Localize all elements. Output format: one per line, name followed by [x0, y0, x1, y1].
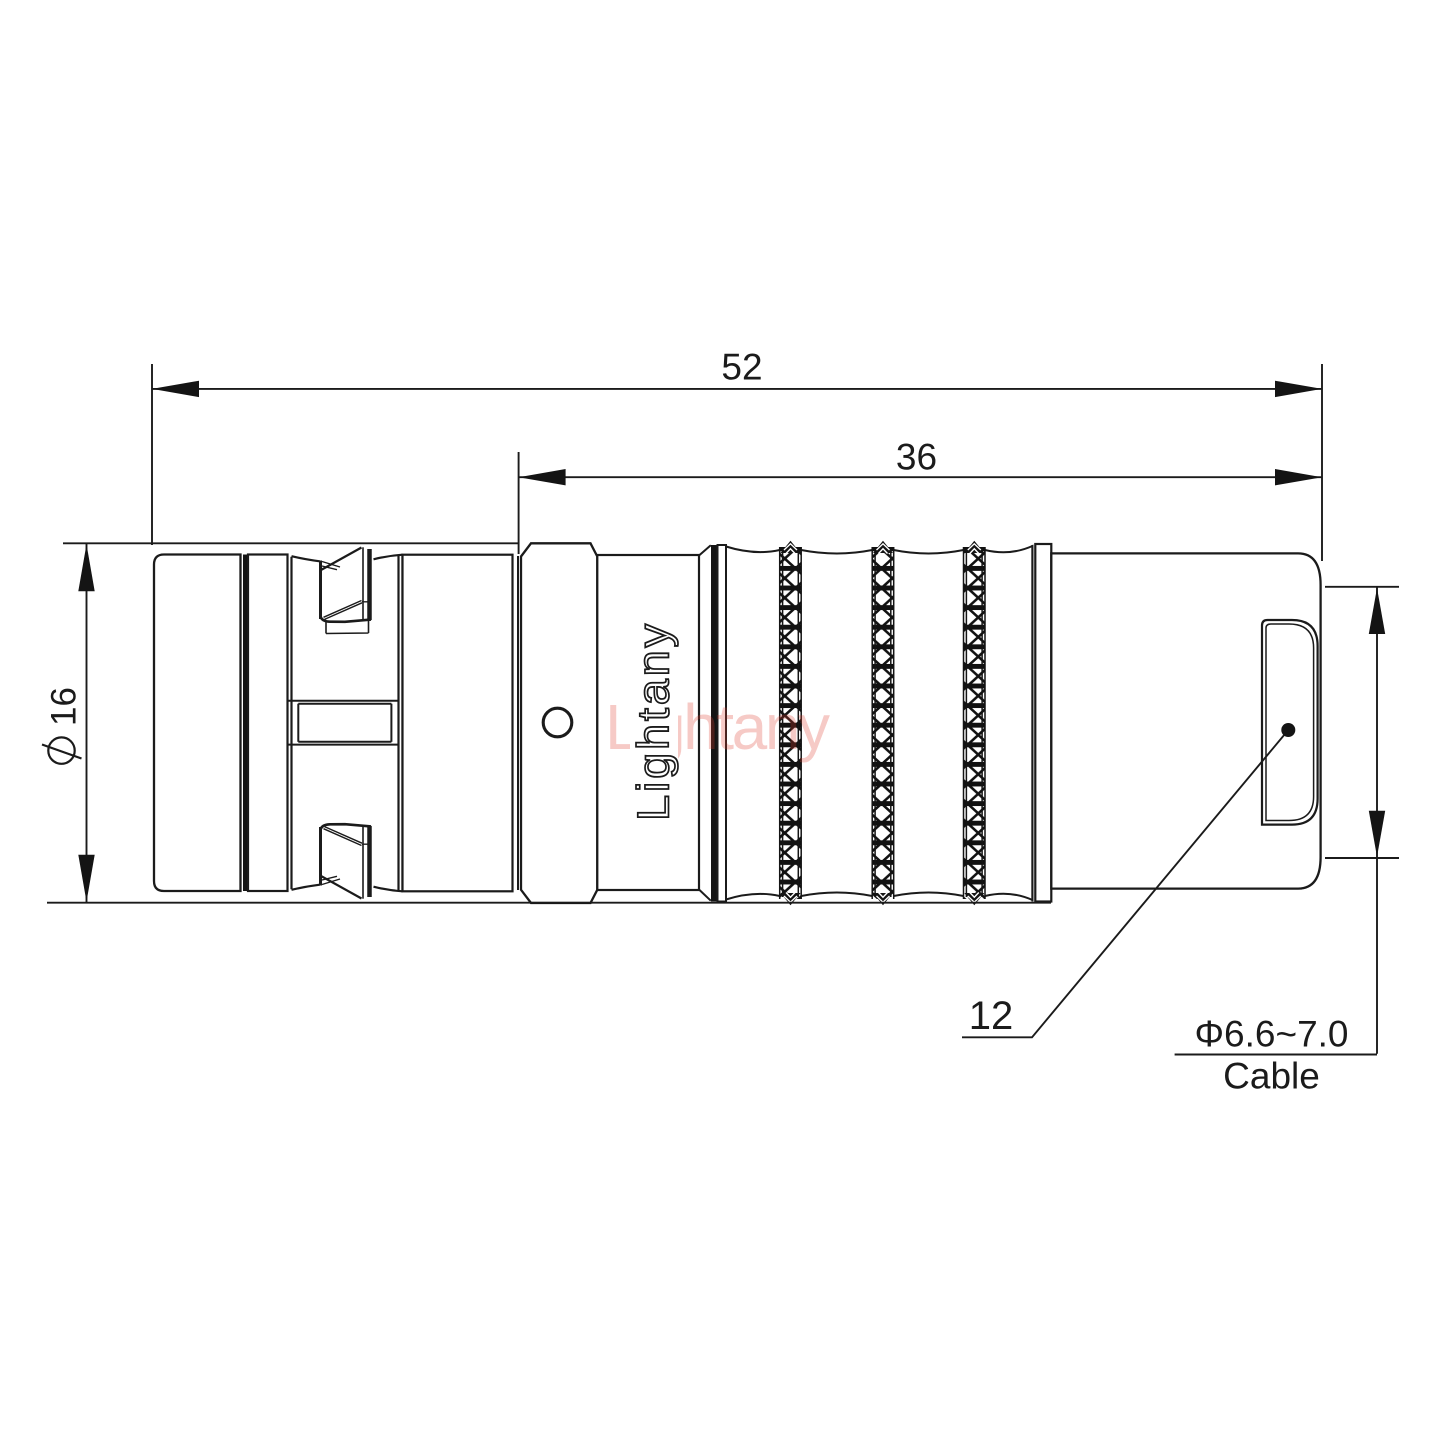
- svg-text:36: 36: [896, 437, 937, 478]
- svg-text:52: 52: [721, 347, 762, 388]
- svg-text:12: 12: [969, 994, 1014, 1038]
- svg-text:Φ6.6~7.0: Φ6.6~7.0: [1195, 1014, 1349, 1055]
- svg-text:Cable: Cable: [1223, 1056, 1320, 1097]
- svg-text:16: 16: [45, 687, 84, 726]
